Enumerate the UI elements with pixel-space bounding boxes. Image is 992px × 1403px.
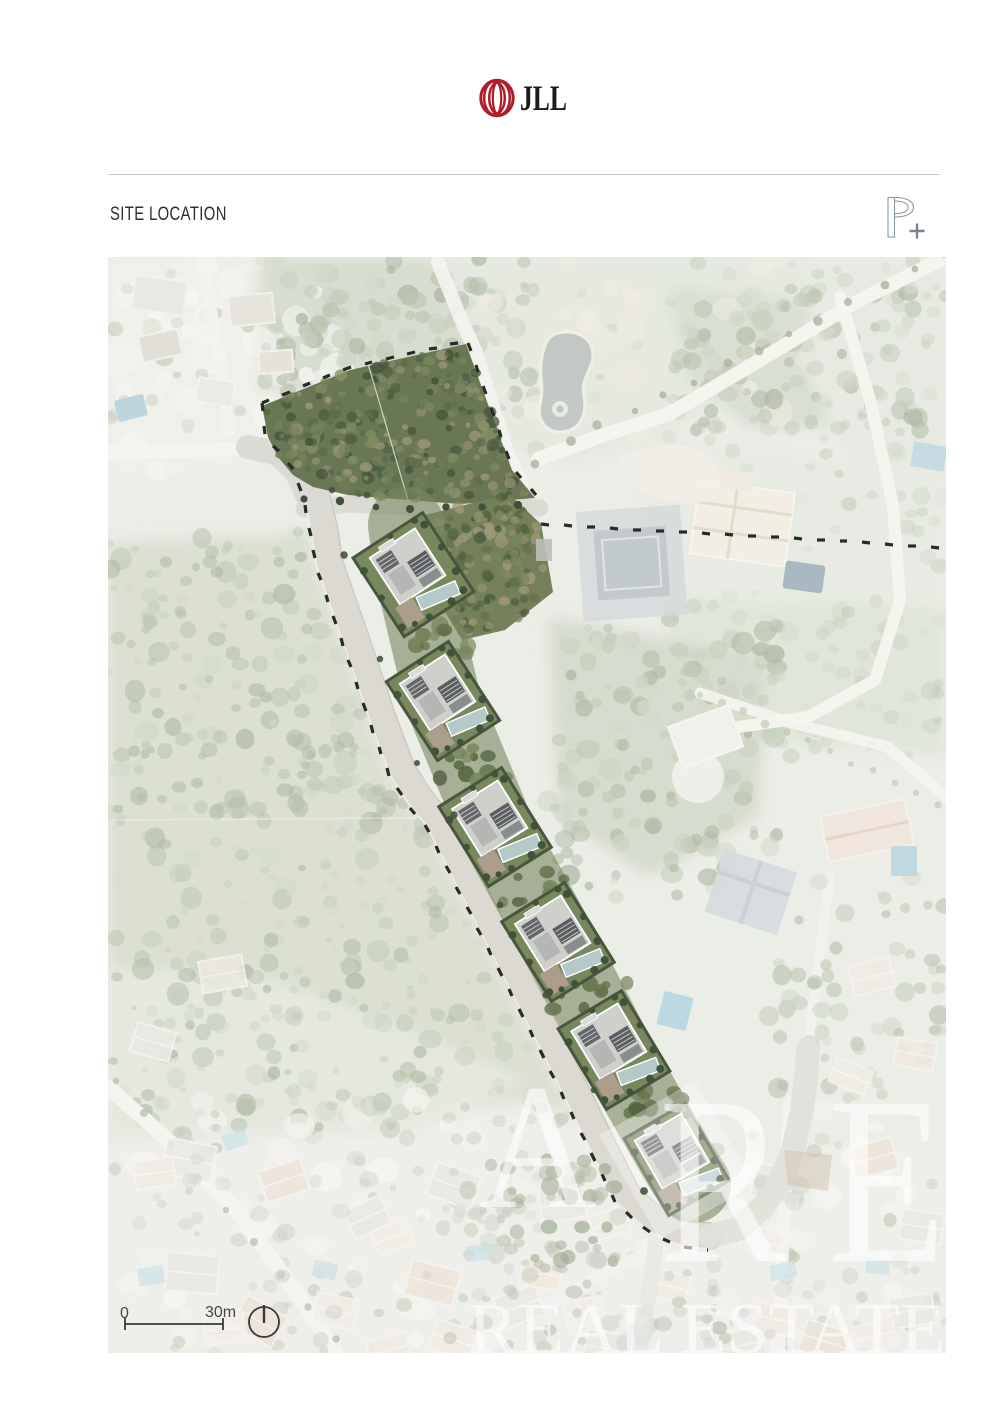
svg-text:30m: 30m: [205, 1304, 236, 1321]
svg-text:E: E: [828, 1049, 946, 1314]
svg-text:0: 0: [120, 1305, 129, 1322]
svg-text:R: R: [659, 1049, 787, 1314]
svg-text:REAL ESTATE: REAL ESTATE: [468, 1288, 946, 1353]
svg-text:JLL: JLL: [520, 78, 567, 118]
svg-text:A: A: [479, 1047, 597, 1246]
